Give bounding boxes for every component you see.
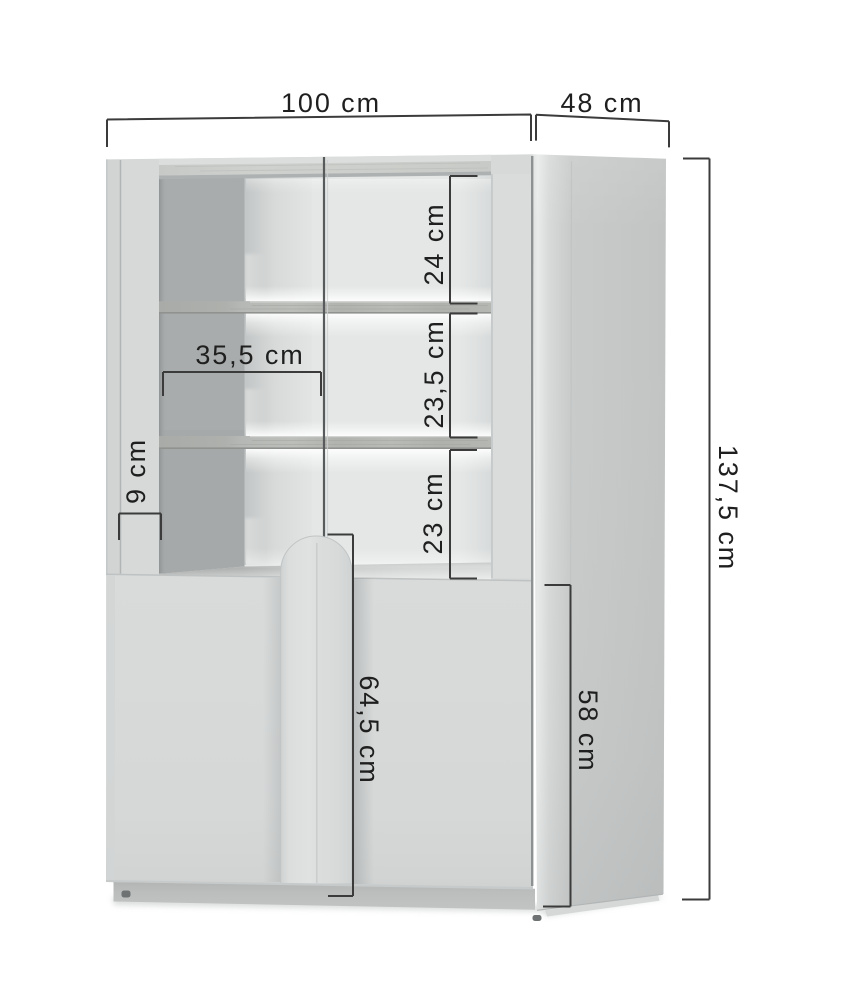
svg-text:64,5 cm: 64,5 cm bbox=[354, 675, 384, 784]
svg-text:23,5 cm: 23,5 cm bbox=[419, 319, 449, 428]
svg-text:35,5 cm: 35,5 cm bbox=[195, 340, 304, 370]
svg-text:137,5 cm: 137,5 cm bbox=[713, 445, 743, 571]
svg-text:9 cm: 9 cm bbox=[121, 438, 151, 504]
svg-text:48 cm: 48 cm bbox=[560, 88, 643, 118]
svg-text:24 cm: 24 cm bbox=[419, 202, 449, 285]
svg-text:23 cm: 23 cm bbox=[418, 471, 448, 554]
svg-text:100 cm: 100 cm bbox=[281, 88, 381, 118]
svg-text:58 cm: 58 cm bbox=[573, 689, 603, 772]
